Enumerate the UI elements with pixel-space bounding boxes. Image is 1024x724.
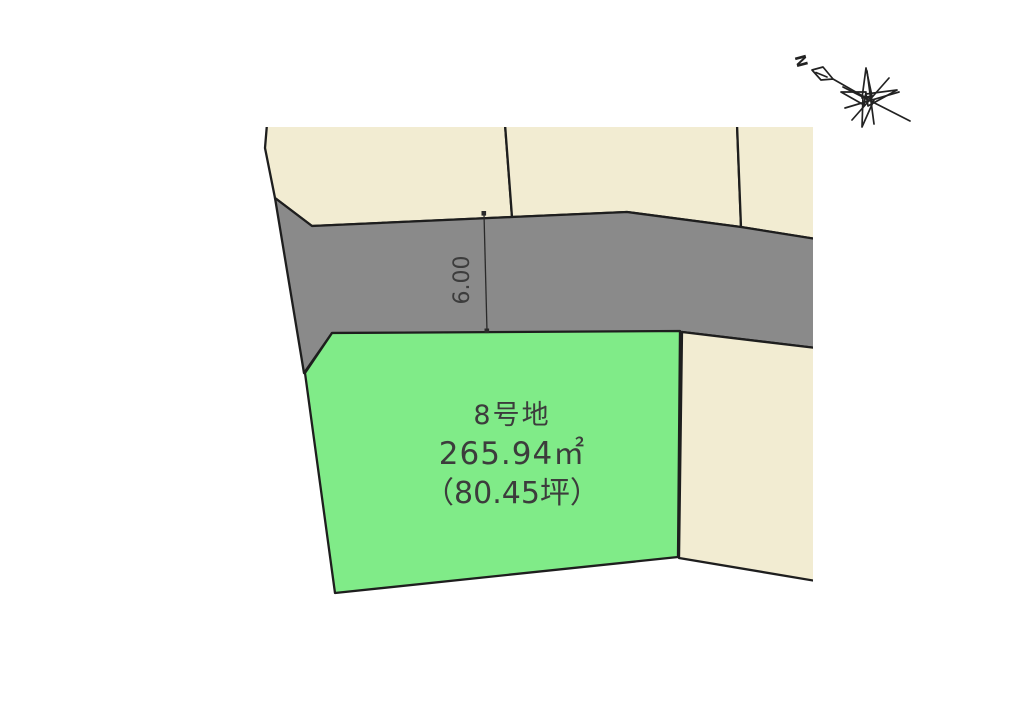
lot-area-m2-label: 265.94㎡ <box>439 436 585 472</box>
neighbor-lot-bottom-right <box>679 332 816 581</box>
compass-star-spikes-icon <box>841 68 897 127</box>
compass-rose: N <box>791 53 910 127</box>
lot-name-label: 8号地 <box>473 400 550 431</box>
neighbor-lot-top-right <box>737 124 816 239</box>
compass-north-label: N <box>791 53 812 70</box>
lot-area-tsubo-label: （80.45坪） <box>424 476 600 511</box>
lot-diagram: 6.00 8号地 265.94㎡ （80.45坪） N <box>0 0 1024 724</box>
road-width-label: 6.00 <box>450 256 475 305</box>
plot-map-canvas: 6.00 8号地 265.94㎡ （80.45坪） N <box>0 0 1024 724</box>
neighbor-lot-top-left <box>265 124 512 226</box>
compass-north-arrow-icon <box>812 67 861 95</box>
parcel-group <box>265 124 816 593</box>
dimension-end-marker-top <box>482 211 487 216</box>
dimension-end-marker-bottom <box>485 329 490 334</box>
compass-star-lines-icon <box>843 71 910 124</box>
